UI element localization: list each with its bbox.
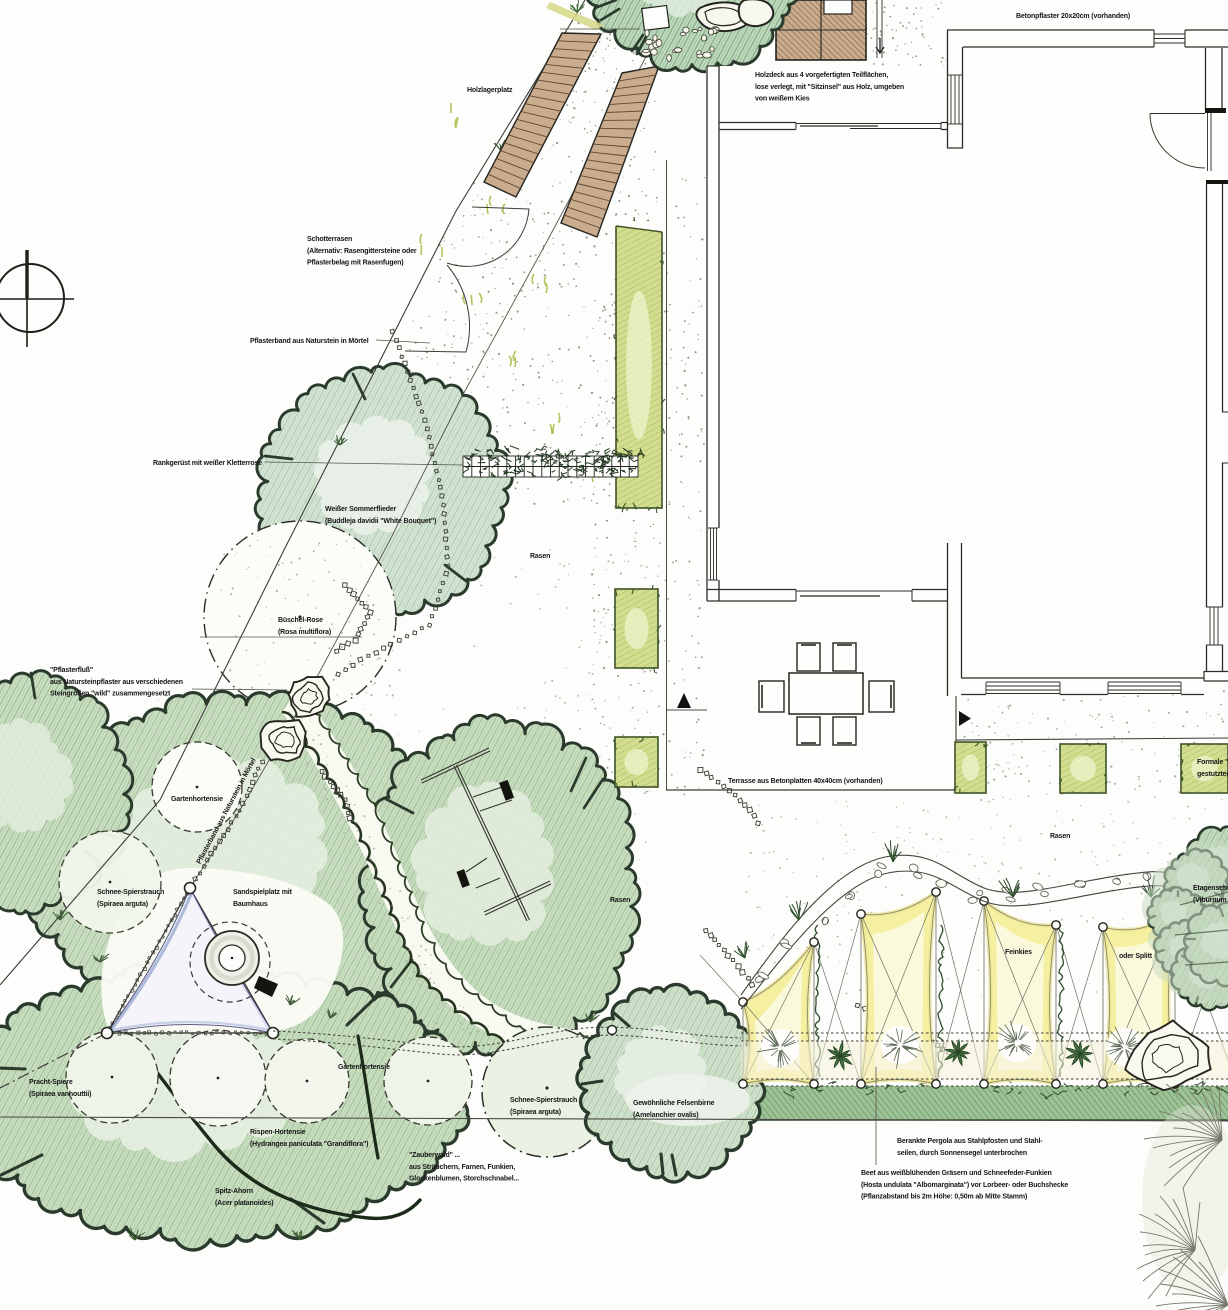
svg-text:Betonpflaster 20x20cm (vorhand: Betonpflaster 20x20cm (vorhanden) bbox=[1016, 13, 1130, 20]
svg-text:Rasen: Rasen bbox=[530, 553, 550, 560]
svg-text:Terrasse aus Betonplatten 40x4: Terrasse aus Betonplatten 40x40cm (vorha… bbox=[728, 778, 883, 785]
svg-text:Feinkies: Feinkies bbox=[1005, 949, 1032, 956]
svg-text:Pflasterband aus Naturstein in: Pflasterband aus Naturstein in Mörtel bbox=[250, 338, 369, 345]
svg-text:Rasen: Rasen bbox=[610, 897, 630, 904]
svg-text:Gartenhortensie: Gartenhortensie bbox=[171, 796, 223, 803]
svg-text:Rankgerüst mit weißer Kletterr: Rankgerüst mit weißer Kletterrose bbox=[153, 460, 262, 467]
svg-text:Holzlagerplatz: Holzlagerplatz bbox=[467, 87, 513, 94]
svg-text:Rasen: Rasen bbox=[1050, 833, 1070, 840]
svg-text:Gartenhortensie: Gartenhortensie bbox=[338, 1064, 390, 1071]
svg-text:oder Splitt: oder Splitt bbox=[1119, 953, 1153, 960]
